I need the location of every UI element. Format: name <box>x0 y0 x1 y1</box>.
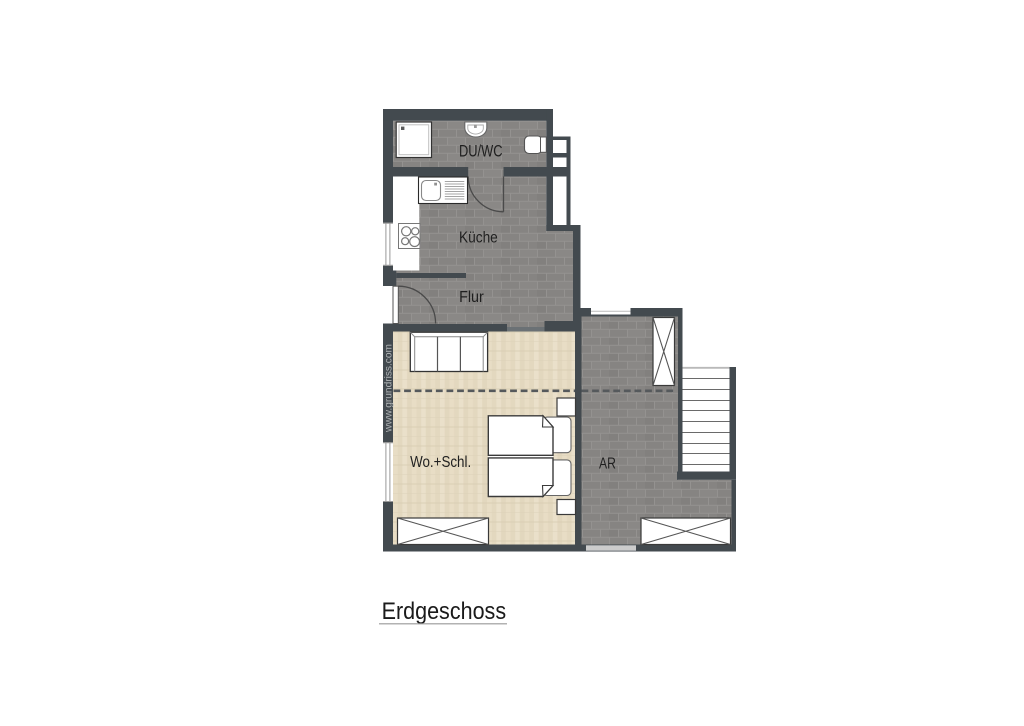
svg-text:AR: AR <box>599 455 616 472</box>
svg-text:Küche: Küche <box>459 229 498 246</box>
svg-text:Erdgeschoss: Erdgeschoss <box>382 598 507 625</box>
svg-text:www.grundriss.com: www.grundriss.com <box>384 344 395 433</box>
svg-text:DU/WC: DU/WC <box>459 141 503 160</box>
svg-text:Wo.+Schl.: Wo.+Schl. <box>410 454 471 471</box>
svg-text:Flur: Flur <box>459 289 484 306</box>
